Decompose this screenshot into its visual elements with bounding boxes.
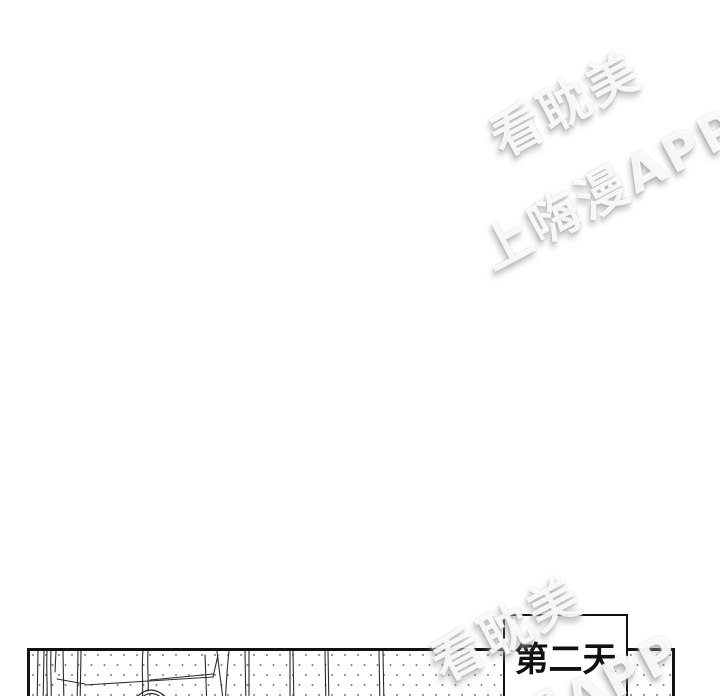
watermark-top: 看耽美 上嗨漫APP [394, 0, 720, 311]
caption-box: 第二天 [503, 614, 628, 696]
watermark-top-line2: 上嗨漫APP [439, 67, 720, 311]
watermark-top-line1: 看耽美 [394, 0, 720, 227]
caption-text: 第二天 [505, 643, 626, 677]
comic-page: 第二天 看耽美 上嗨漫APP 看耽美 上嗨漫APP [0, 0, 720, 696]
